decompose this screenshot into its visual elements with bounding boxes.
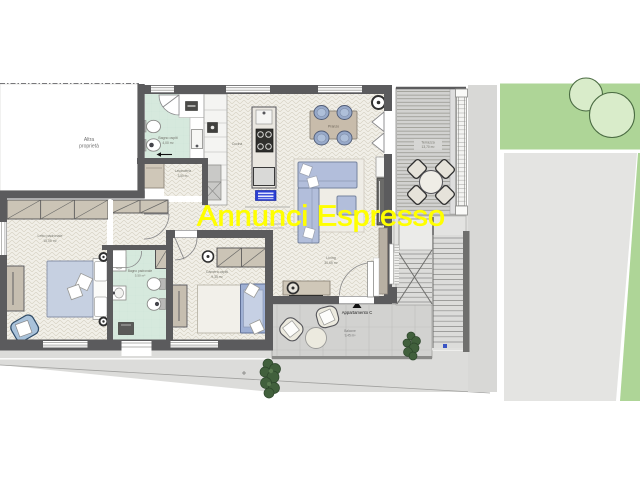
svg-text:Living: Living [326, 256, 335, 260]
svg-text:30,65 m²: 30,65 m² [324, 261, 338, 265]
svg-text:Appartamento C: Appartamento C [342, 310, 373, 315]
svg-text:proprietà: proprietà [79, 144, 99, 150]
svg-text:3,50 m²: 3,50 m² [178, 174, 189, 178]
svg-text:15,05 m²: 15,05 m² [43, 239, 57, 243]
svg-text:Letto padronale: Letto padronale [38, 234, 63, 238]
svg-text:Terrazza: Terrazza [421, 141, 434, 145]
svg-text:Altra: Altra [84, 137, 95, 143]
svg-text:5,50 m²: 5,50 m² [135, 274, 146, 278]
svg-text:Balcone: Balcone [344, 329, 356, 333]
svg-text:13,70 m²: 13,70 m² [421, 145, 435, 149]
svg-text:Lavanderia: Lavanderia [175, 169, 191, 173]
svg-text:9,35 m²: 9,35 m² [211, 275, 223, 279]
svg-text:Cucina: Cucina [232, 142, 243, 146]
svg-text:Camera ospiti: Camera ospiti [206, 270, 228, 274]
svg-text:9,45 m²: 9,45 m² [345, 334, 356, 338]
svg-text:Bagno padronale: Bagno padronale [128, 269, 153, 273]
svg-text:Annunci Espresso: Annunci Espresso [197, 201, 445, 233]
svg-text:Pranzo: Pranzo [328, 125, 339, 129]
svg-text:Bagno ospiti: Bagno ospiti [158, 136, 177, 140]
svg-text:4,00 m²: 4,00 m² [162, 141, 174, 145]
